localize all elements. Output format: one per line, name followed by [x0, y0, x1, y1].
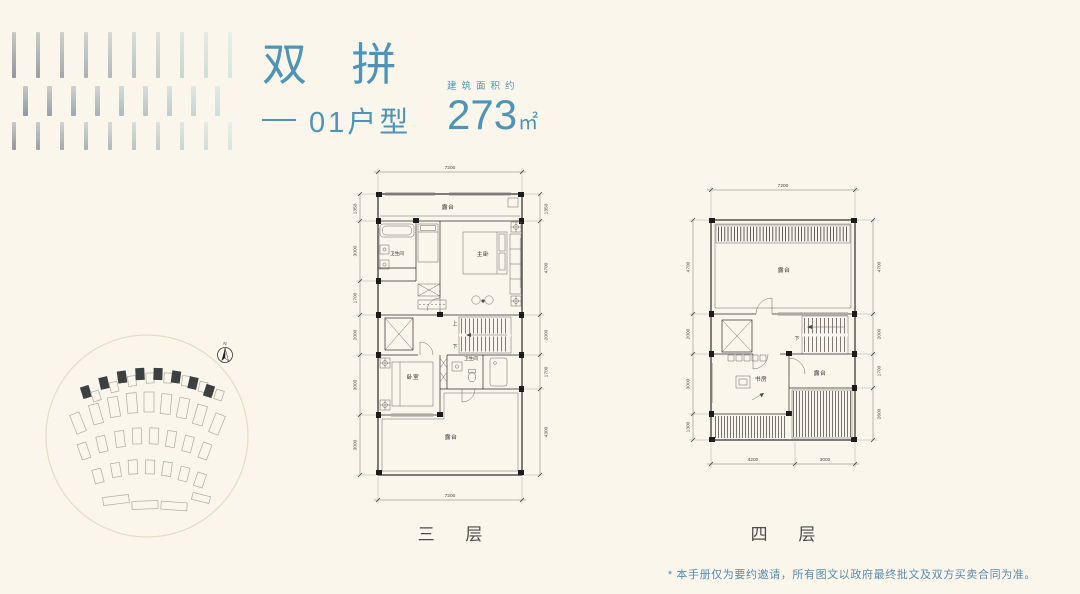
siteplan-building [149, 428, 159, 444]
siteplan: N [40, 328, 256, 544]
siteplan-building [145, 460, 154, 474]
area-number: 273 [447, 91, 517, 138]
floor4-dim-bottom-2: 3000 [820, 457, 831, 463]
siteplan-building [103, 494, 130, 505]
siteplan-building [165, 430, 176, 447]
decorative-bar [12, 32, 16, 78]
decorative-bar [84, 32, 88, 78]
floor3-dim-left-2: 3000 [353, 245, 359, 256]
siteplan-building [209, 413, 226, 435]
decorative-bar [119, 86, 124, 116]
floor4-dim-left-2: 2000 [686, 328, 692, 339]
floor3-dim-right-1: 1350 [544, 203, 550, 214]
floor3-plan: 7200 7200 1350 3000 1700 2000 3000 3000 … [325, 148, 575, 518]
decorative-bar [180, 122, 184, 150]
siteplan-building [162, 461, 173, 476]
siteplan-building [132, 501, 158, 510]
floor4-dim-right-4: 2600 [877, 408, 883, 419]
floor4-stairs-down-label: 下 [794, 336, 799, 342]
decorative-bar [228, 122, 232, 150]
floor3-dim-left-4: 2000 [353, 329, 359, 340]
floor3-stairs-down-label: 下 [452, 344, 457, 350]
decorative-bar [12, 122, 16, 150]
floor3-dim-right-4: 1700 [544, 366, 550, 377]
floor4-room-labels: 露台 书房 露台 [755, 266, 826, 383]
floor3-dim-top: 7200 [445, 165, 456, 171]
siteplan-building [126, 393, 138, 414]
floor4-dim-right-1: 4700 [877, 261, 883, 272]
area-value: 273㎡ [447, 94, 538, 136]
floor4-dim-right-2: 2000 [877, 328, 883, 339]
decorative-bar [36, 122, 40, 150]
decorative-bar [167, 86, 172, 116]
siteplan-building [92, 468, 104, 484]
siteplan-building [107, 396, 120, 417]
siteplan-building-highlighted [135, 368, 145, 380]
floor3-dim-left-3: 1700 [353, 292, 359, 303]
floor3-stairs-up-label: 上 [452, 320, 457, 327]
floor4-dim-right-3: 1700 [877, 365, 883, 376]
decorative-bar [60, 32, 64, 78]
siteplan-building [115, 431, 126, 448]
siteplan-buildings [70, 368, 226, 511]
siteplan-building [192, 404, 207, 426]
floor4-dim-left-3: 3000 [686, 378, 692, 389]
siteplan-building [146, 373, 155, 383]
siteplan-building [88, 403, 103, 425]
floor4-terrace-top-label: 露台 [778, 266, 790, 274]
siteplan-drawing: N [40, 328, 256, 544]
decorative-bar [47, 86, 52, 116]
decorative-bar [60, 122, 64, 150]
area-unit: ㎡ [518, 112, 538, 134]
decorative-bar [95, 86, 100, 116]
floor3-bathroom-lower-label: 卫生间 [464, 355, 478, 362]
floor3-dim-left-5: 3000 [353, 379, 359, 390]
floor4-caption: 四 层 [658, 520, 908, 545]
decorative-bar [204, 122, 208, 150]
decorative-bar [215, 86, 220, 116]
decorative-bar [204, 32, 208, 78]
brochure-page: 双 拼 01户型 建筑面积约 273㎡ 7200 7200 1350 3000 … [0, 0, 1080, 594]
floor3-terrace-top-label: 露台 [442, 203, 454, 211]
title-block: 双 拼 01户型 [262, 40, 413, 141]
floor3-master-bedroom-label: 主卧 [477, 250, 489, 258]
siteplan-building [77, 442, 91, 460]
floor3-elevator [385, 318, 413, 350]
siteplan-building [198, 442, 212, 460]
decorative-bar [23, 86, 28, 116]
floor4-study-label: 书房 [755, 375, 767, 383]
decorative-bar [108, 122, 112, 150]
siteplan-building [178, 466, 190, 482]
decorative-bar [132, 122, 136, 150]
floor4-dim-bottom-1: 4200 [748, 457, 759, 463]
decorative-bar [132, 32, 136, 78]
floor3-dim-left-6: 3000 [353, 439, 359, 450]
floor4-dim-top: 7200 [778, 183, 789, 189]
floor4-figure: 7200 4200 3000 4700 2000 3000 1300 4700 … [658, 148, 908, 545]
floor3-bedroom-label: 卧室 [407, 373, 419, 381]
siteplan-building [128, 460, 138, 474]
floor3-dim-right-5: 4300 [544, 426, 550, 437]
floor4-elevator [722, 320, 752, 352]
siteplan-building [191, 492, 210, 503]
decorative-bar [36, 32, 40, 78]
decorative-bar [84, 122, 88, 150]
siteplan-building-highlighted [80, 385, 92, 399]
siteplan-building-highlighted [117, 370, 128, 383]
siteplan-building [110, 462, 121, 477]
disclaimer: * 本手册仅为要约邀请，所有图文以政府最终批文及双方买卖合同为准。 [668, 566, 1036, 582]
compass-icon: N [218, 341, 233, 363]
siteplan-circle [46, 335, 248, 537]
siteplan-building [109, 381, 119, 393]
decorative-bar [71, 86, 76, 116]
floor3-dim-bottom: 7200 [445, 493, 456, 499]
floor4-dim-left-1: 4700 [686, 261, 692, 272]
floor3-caption: 三 层 [325, 520, 575, 545]
unit-type-label: 01户型 [309, 99, 411, 141]
siteplan-building [176, 397, 190, 419]
siteplan-building-highlighted [171, 370, 182, 383]
subtitle-row: 01户型 [262, 99, 413, 141]
floor4-dim-left-4: 1300 [686, 421, 692, 432]
siteplan-building [182, 435, 195, 453]
floor3-bathroom-upper-label: 卫生间 [390, 250, 404, 257]
floor4-pergola [715, 224, 851, 308]
page-title: 双 拼 [262, 40, 413, 90]
siteplan-building-highlighted [98, 376, 109, 390]
siteplan-building [132, 428, 142, 444]
siteplan-building [193, 472, 206, 488]
floor3-terrace-bottom-label: 露台 [445, 433, 457, 441]
floor3-figure: 7200 7200 1350 3000 1700 2000 3000 3000 … [325, 148, 575, 545]
floor3-dim-right-3: 2000 [544, 329, 550, 340]
siteplan-building [96, 435, 108, 453]
floor4-plan: 7200 4200 3000 4700 2000 3000 1300 4700 … [658, 148, 908, 518]
siteplan-building [144, 392, 154, 412]
siteplan-building [160, 394, 172, 415]
floor4-fixtures [715, 298, 852, 438]
floor3-dim-right-2: 4700 [544, 262, 550, 273]
decorative-bar [191, 86, 196, 116]
decorative-bar [108, 32, 112, 78]
siteplan-building [70, 412, 87, 434]
decorative-bar [228, 32, 232, 78]
siteplan-building [161, 501, 187, 511]
siteplan-building-highlighted [153, 368, 162, 380]
area-block: 建筑面积约 273㎡ [447, 78, 538, 136]
title-dash [262, 119, 296, 121]
decorative-bar [180, 32, 184, 78]
siteplan-building-highlighted [203, 384, 215, 398]
area-label: 建筑面积约 [447, 78, 538, 92]
siteplan-building-highlighted [187, 376, 198, 390]
floor4-terrace-side-label: 露台 [814, 369, 826, 377]
siteplan-building [91, 390, 102, 402]
decorative-bar [143, 86, 148, 116]
floor3-stairs: 上 下 [452, 317, 511, 353]
floor4-stairs: 下 [794, 316, 848, 354]
decorative-bars [12, 30, 244, 154]
floor3-dim-left-1: 1350 [353, 203, 359, 214]
siteplan-building [127, 375, 136, 386]
compass-north-label: N [223, 341, 226, 346]
decorative-bar [156, 122, 160, 150]
siteplan-building [214, 389, 225, 401]
decorative-bar [156, 32, 160, 78]
